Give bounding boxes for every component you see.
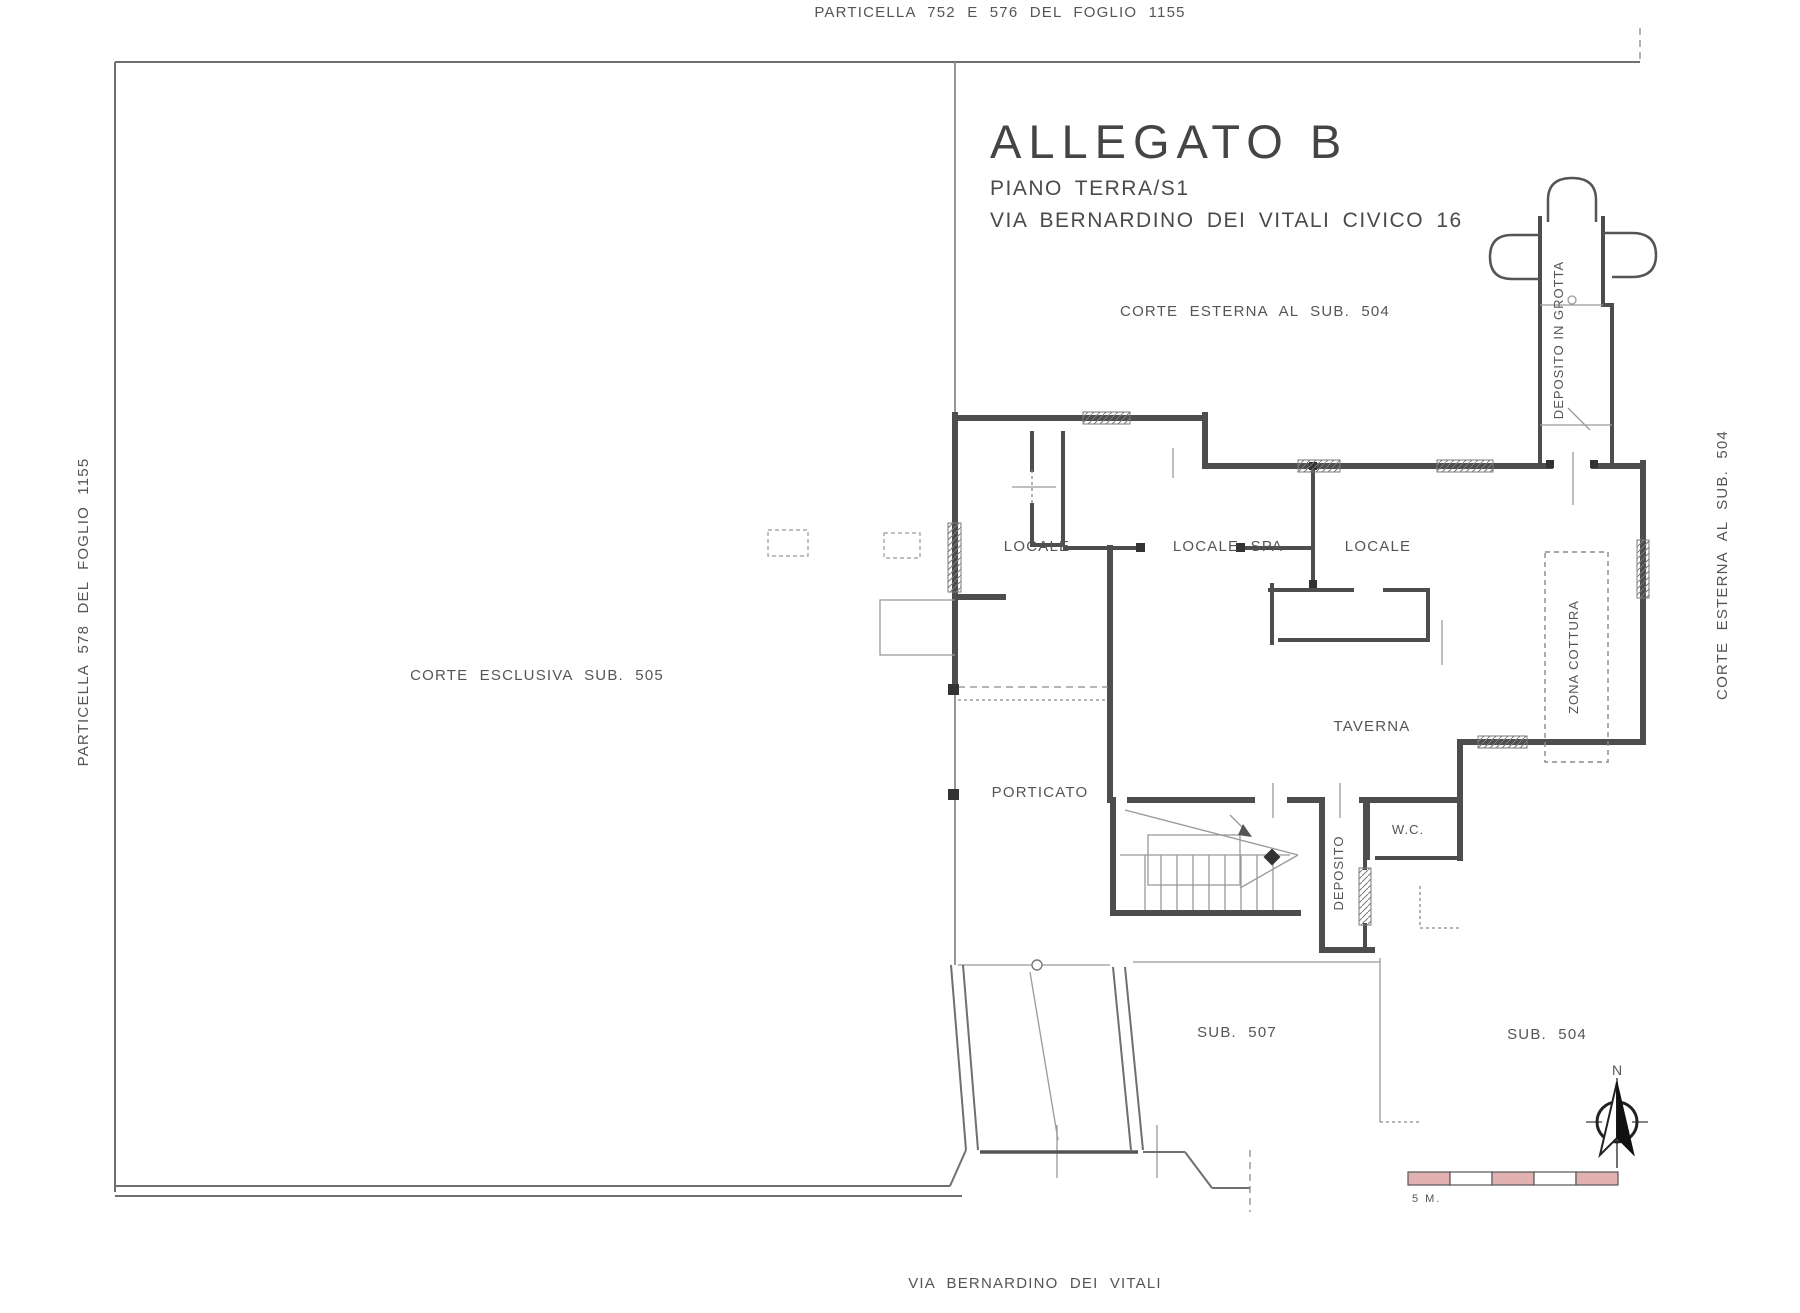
room-taverna-label: TAVERNA [1333,718,1410,735]
sub-504-label: SUB. 504 [1507,1026,1587,1043]
deposito-grotta-label: DEPOSITO IN GROTTA [1551,261,1566,419]
room-locale-2-label: LOCALE [1345,538,1411,555]
interior-partitions [1012,433,1598,818]
left-parcel-label: PARTICELLA 578 DEL FOGLIO 1155 [75,458,92,767]
room-locale-spa-label: LOCALE SPA [1173,538,1283,555]
scale-bar: 5 M. [1408,1172,1618,1205]
street-label: VIA BERNARDINO DEI VITALI [908,1275,1162,1292]
sub-507-label: SUB. 507 [1197,1024,1277,1041]
sheet-address: VIA BERNARDINO DEI VITALI CIVICO 16 [990,209,1463,232]
scale-bar-label: 5 M. [1412,1193,1441,1205]
floor-plan-sheet: PARTICELLA 752 E 576 DEL FOGLIO 1155 PAR… [0,0,1800,1313]
corte-esclusiva-label: CORTE ESCLUSIVA SUB. 505 [410,667,664,684]
porticato-passage [948,684,1462,1212]
north-label: N [1612,1062,1622,1078]
room-deposito-label: DEPOSITO [1331,836,1346,911]
sheet-floor: PIANO TERRA/S1 [990,177,1190,200]
building-walls [955,415,1643,950]
room-wc-label: W.C. [1392,822,1424,837]
floor-plan-drawing: PARTICELLA 752 E 576 DEL FOGLIO 1155 PAR… [0,0,1800,1313]
room-porticato-label: PORTICATO [992,784,1089,801]
right-court-label: CORTE ESTERNA AL SUB. 504 [1714,430,1731,700]
staircase [1120,810,1298,910]
grotta-corridor [1490,178,1656,466]
window-hatches [948,412,1649,925]
room-locale-1-label: LOCALE [1004,538,1070,555]
corte-esterna-label: CORTE ESTERNA AL SUB. 504 [1120,303,1390,320]
site-boundaries [115,28,1640,1196]
labels: PARTICELLA 752 E 576 DEL FOGLIO 1155 PAR… [75,4,1731,1292]
north-arrow: N [1586,1062,1648,1168]
top-parcel-label: PARTICELLA 752 E 576 DEL FOGLIO 1155 [814,4,1185,21]
sheet-title: ALLEGATO B [990,115,1348,168]
zona-cottura-label: ZONA COTTURA [1566,600,1581,714]
left-wall-details [768,530,955,655]
